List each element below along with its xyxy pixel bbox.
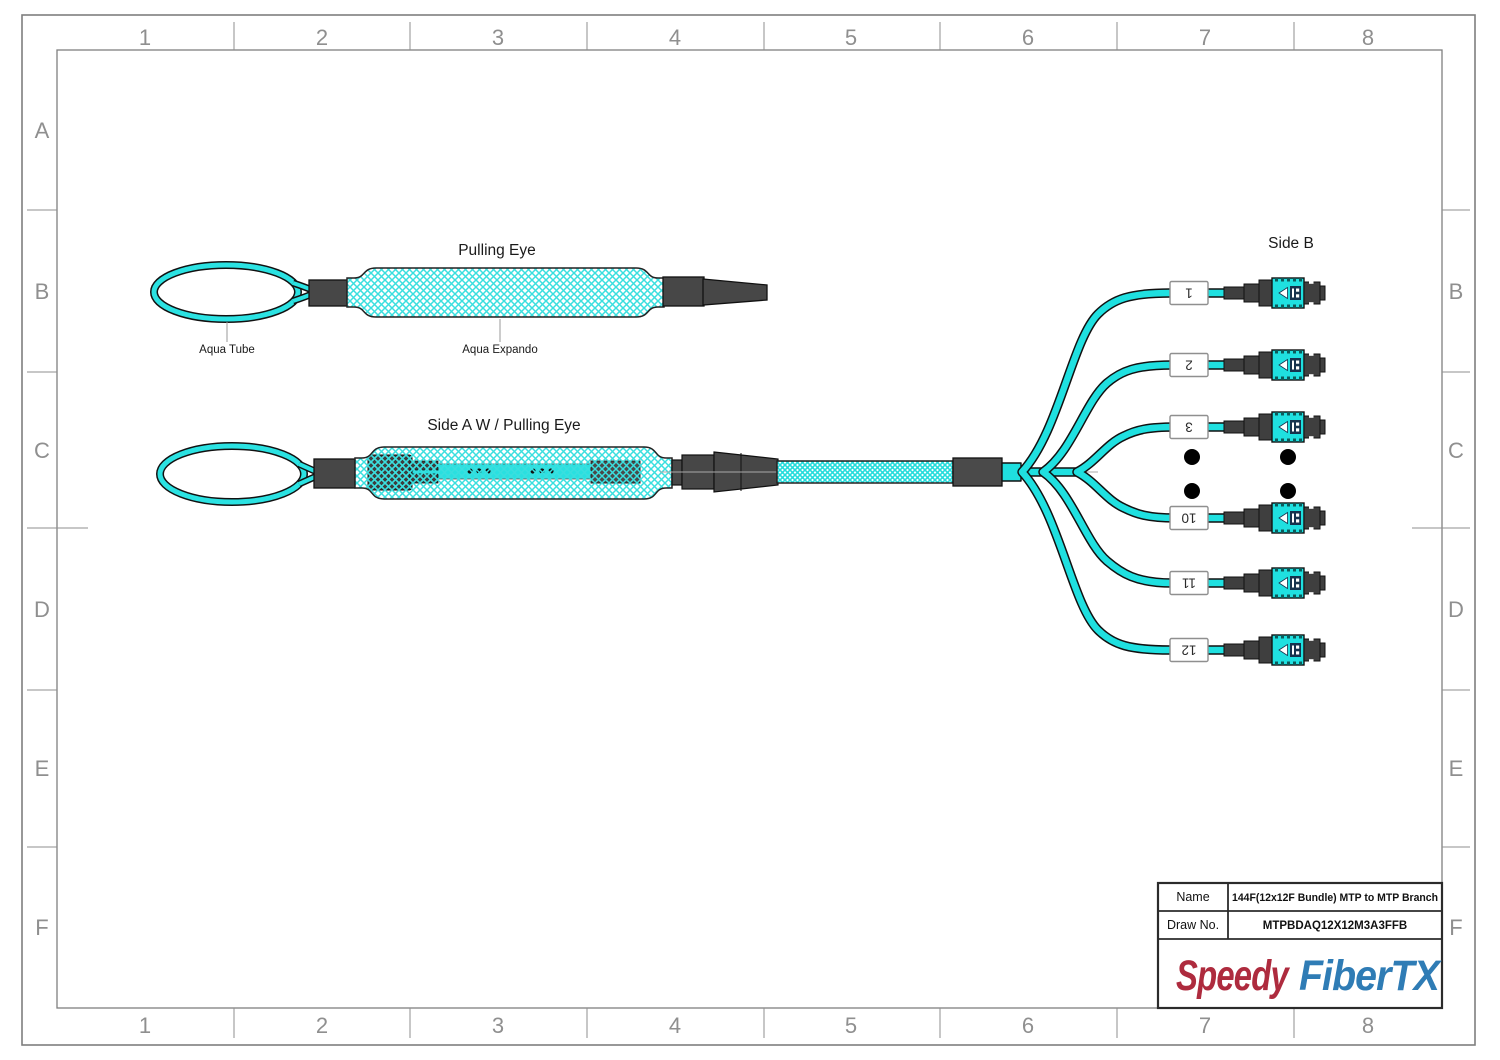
omitted-branches-dots	[1184, 449, 1296, 499]
title-block: Name 144F(12x12F Bundle) MTP to MTP Bran…	[1158, 883, 1442, 1008]
svg-text:5: 5	[845, 25, 857, 50]
aqua-expando-label: Aqua Expando	[462, 344, 537, 356]
pulling-eye-nose	[703, 279, 767, 305]
svg-text:1: 1	[139, 1013, 151, 1038]
name-value: 144F(12x12F Bundle) MTP to MTP Branch	[1232, 892, 1438, 904]
svg-text:4: 4	[669, 25, 681, 50]
pulling-eye-assembly: Pulling Eye Aqua Tube Aqua Expando	[154, 242, 767, 356]
svg-text:1: 1	[139, 25, 151, 50]
svg-text:F: F	[35, 915, 48, 940]
name-label: Name	[1176, 890, 1209, 904]
draw-no-value: MTPBDAQ12X12M3A3FFB	[1263, 920, 1407, 932]
draw-no-label: Draw No.	[1167, 918, 1219, 932]
side-a-title: Side A W / Pulling Eye	[427, 417, 580, 434]
grid-row-labels: A B C D E F B C D E F	[34, 118, 1464, 940]
svg-text:E: E	[1449, 756, 1464, 781]
svg-text:3: 3	[492, 1013, 504, 1038]
svg-text:C: C	[34, 438, 50, 463]
svg-text:D: D	[34, 597, 50, 622]
svg-text:2: 2	[316, 25, 328, 50]
svg-text:C: C	[1448, 438, 1464, 463]
svg-text:F: F	[1449, 915, 1462, 940]
drawing-sheet: 1 2 3 4 5 6 7 8 1 2 3 4 5 6 7 8 A B C D …	[0, 0, 1500, 1060]
branch-tag-3: 3	[1185, 420, 1193, 435]
svg-text:6: 6	[1022, 25, 1034, 50]
branch-fanout	[1002, 293, 1232, 650]
svg-text:B: B	[1449, 279, 1464, 304]
svg-text:7: 7	[1199, 25, 1211, 50]
svg-text:D: D	[1448, 597, 1464, 622]
svg-text:7: 7	[1199, 1013, 1211, 1038]
branch-pair-inner	[1077, 427, 1232, 518]
side-a-assembly: Side A W / Pulling Eye	[160, 417, 778, 502]
svg-text:A: A	[35, 118, 50, 143]
brand-logo: Speedy FiberTX	[1176, 952, 1442, 1000]
branch-tag-10: 10	[1181, 511, 1196, 526]
svg-text:6: 6	[1022, 1013, 1034, 1038]
furcation-body	[953, 458, 1002, 486]
side-b: Side B 1 2 3 10 11 12	[1170, 235, 1325, 665]
side-a-crimp	[314, 459, 355, 488]
svg-text:E: E	[35, 756, 50, 781]
svg-text:4: 4	[669, 1013, 681, 1038]
aqua-tube-label: Aqua Tube	[199, 344, 255, 356]
branch-tag-12: 12	[1181, 643, 1196, 658]
pulling-eye-crimp	[309, 280, 349, 306]
svg-text:5: 5	[845, 1013, 857, 1038]
side-b-title: Side B	[1268, 235, 1314, 252]
side-a-exit-collar	[672, 460, 682, 485]
svg-text:3: 3	[492, 25, 504, 50]
branch-tag-2: 2	[1185, 358, 1193, 373]
trunk-cable	[777, 458, 1002, 486]
svg-text:2: 2	[316, 1013, 328, 1038]
svg-text:B: B	[35, 279, 50, 304]
branch-tag-11: 11	[1182, 576, 1196, 591]
svg-text:8: 8	[1362, 25, 1374, 50]
brand-logo-fibertx: FiberTX	[1299, 952, 1442, 1000]
cad-drawing: 1 2 3 4 5 6 7 8 1 2 3 4 5 6 7 8 A B C D …	[0, 0, 1500, 1060]
pulling-eye-ferrule	[663, 277, 704, 306]
branch-tag-1: 1	[1185, 286, 1193, 301]
svg-text:8: 8	[1362, 1013, 1374, 1038]
pulling-eye-title: Pulling Eye	[458, 242, 536, 259]
brand-logo-speedy: Speedy	[1176, 952, 1290, 1000]
branch-tags: 1 2 3 10 11 12	[1170, 282, 1208, 662]
